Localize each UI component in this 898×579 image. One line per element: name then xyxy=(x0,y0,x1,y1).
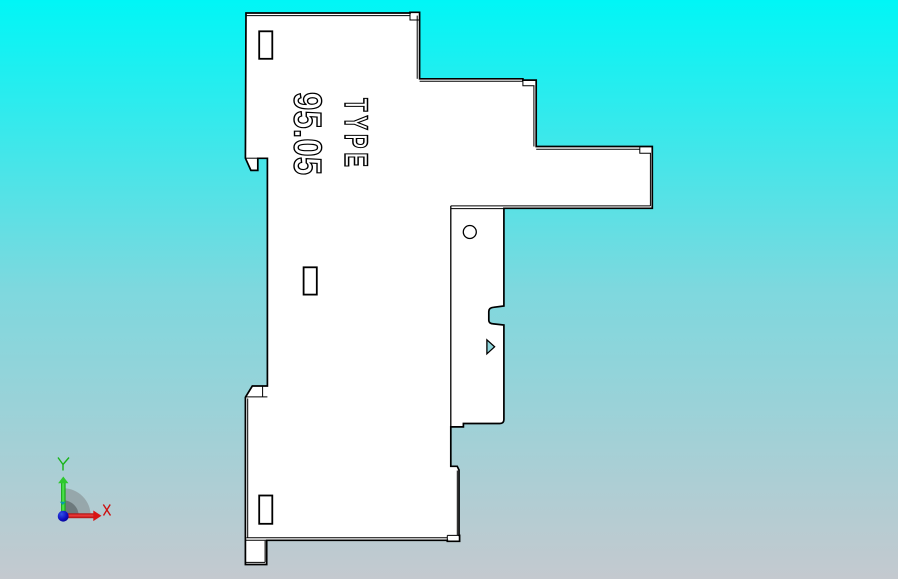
svg-text:TYPE: TYPE xyxy=(338,98,374,171)
svg-text:95.05: 95.05 xyxy=(286,92,330,175)
